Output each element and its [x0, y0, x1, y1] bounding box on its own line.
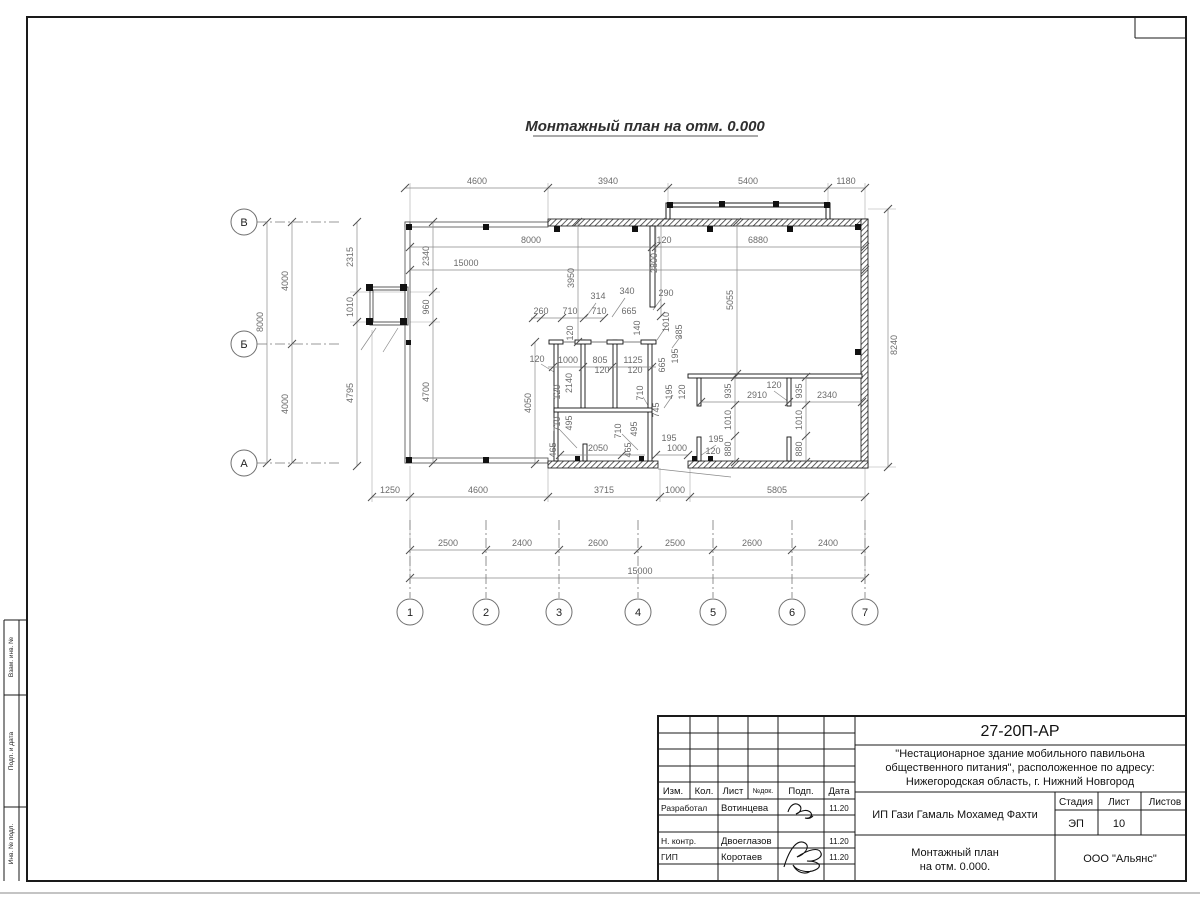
project-line2: общественного питания", расположенное по… — [885, 762, 1154, 774]
sidebar-label-podp: Подп. и дата — [8, 731, 15, 770]
rect-shape — [406, 224, 412, 230]
sidebar-label-inv: Инв. № подл. — [8, 824, 15, 865]
sheet-number: 10 — [1113, 818, 1125, 830]
dim-label: 120 — [705, 446, 720, 456]
row1-name: Двоеглазов — [721, 836, 772, 847]
dim-label: 1000 — [665, 485, 685, 495]
axis-label: 4 — [635, 607, 641, 619]
dim-label: 8000 — [521, 235, 541, 245]
frame-sidebar-labels: Взам. инв. № Подп. и дата Инв. № подл. — [8, 637, 15, 864]
dim-label: 495 — [564, 415, 574, 430]
dim-label: 4600 — [467, 176, 487, 186]
rect-shape — [708, 456, 713, 461]
rect-shape — [719, 201, 725, 207]
dim-label: 1010 — [723, 410, 733, 430]
dim-label: 2315 — [345, 247, 355, 267]
dim-label: 4000 — [280, 394, 290, 414]
rect-shape — [548, 219, 868, 226]
row0-name: Вотинцева — [721, 803, 769, 814]
dim-label: 1010 — [661, 312, 671, 332]
rect-shape — [692, 456, 697, 461]
dim-label: 140 — [632, 320, 642, 335]
dim-label: 665 — [621, 306, 636, 316]
rect-shape — [581, 340, 585, 410]
rect-shape — [400, 284, 407, 291]
signature-votintseva — [788, 804, 813, 819]
dim-label: 290 — [658, 288, 673, 298]
rect-shape — [405, 222, 548, 227]
project-line1: "Нестационарное здание мобильного павиль… — [895, 748, 1145, 760]
axis-label: Б — [240, 339, 247, 351]
dim-label: 2500 — [438, 538, 458, 548]
col-kol: Кол. — [695, 786, 714, 797]
sidebar-label-vzam: Взам. инв. № — [8, 637, 15, 677]
axis-label: 3 — [556, 607, 562, 619]
client-name: ИП Гази Гамаль Мохамед Фахти — [872, 809, 1038, 821]
rect-shape — [632, 226, 638, 232]
rect-shape — [548, 461, 658, 468]
dim-label: 3950 — [566, 268, 576, 288]
dim-label: 710 — [613, 423, 623, 438]
dim-label: 935 — [723, 383, 733, 398]
dim-label: 2500 — [665, 538, 685, 548]
rect-shape — [648, 343, 652, 461]
rect-shape — [641, 340, 656, 344]
rect-shape — [366, 318, 373, 325]
line-shape — [560, 430, 577, 448]
dim-label: 745 — [651, 402, 661, 417]
sheet-label: Лист — [1108, 797, 1130, 808]
dim-label: 880 — [723, 441, 733, 456]
col-list: Лист — [723, 786, 744, 797]
rect-shape — [697, 378, 701, 406]
axis-label: 6 — [789, 607, 795, 619]
dim-label: 1125 — [623, 355, 642, 365]
dim-label: 120 — [552, 384, 562, 399]
path-shape — [666, 203, 830, 221]
rect-shape — [549, 340, 563, 344]
row1-date: 11.20 — [829, 837, 849, 846]
rect-shape — [773, 201, 779, 207]
dim-label: 260 — [533, 306, 548, 316]
dim-label: 120 — [627, 365, 642, 375]
loading-platform-outline — [666, 203, 830, 221]
drawing-sheet: Взам. инв. № Подп. и дата Инв. № подл. М… — [0, 0, 1200, 900]
rect-shape — [688, 461, 868, 468]
dim-label: 880 — [794, 441, 804, 456]
dim-label: 1250 — [380, 485, 400, 495]
rect-shape — [824, 202, 830, 208]
extension-lines — [350, 183, 896, 584]
dim-label: 5805 — [767, 485, 787, 495]
interior-partitions — [549, 226, 862, 461]
rect-shape — [483, 224, 489, 230]
dim-label: 195 — [664, 384, 674, 399]
dim-label: 2910 — [747, 390, 767, 400]
rect-shape — [787, 226, 793, 232]
dim-label: 2600 — [588, 538, 608, 548]
axis-label: В — [240, 217, 247, 229]
dim-label: 465 — [548, 442, 558, 457]
dim-label: 805 — [592, 355, 607, 365]
line-shape — [658, 469, 731, 477]
dim-label: 4700 — [421, 382, 431, 402]
row0-date: 11.20 — [829, 804, 849, 813]
rect-shape — [583, 444, 587, 461]
rect-shape — [405, 458, 548, 463]
dim-label: 120 — [565, 325, 575, 340]
row2-name: Коротаев — [721, 852, 762, 863]
rect-shape — [639, 456, 644, 461]
axis-label: 1 — [407, 607, 413, 619]
rect-shape — [575, 456, 580, 461]
dim-label: 120 — [656, 235, 671, 245]
row0-role: Разработал — [661, 803, 707, 813]
dimension-layer: 4600394054001180800012068801500026071071… — [255, 176, 899, 582]
dim-label: 2340 — [421, 246, 431, 266]
dim-label: 6880 — [748, 235, 768, 245]
row2-role: ГИП — [661, 852, 678, 862]
rect-shape — [855, 224, 861, 230]
dim-label: 314 — [590, 291, 605, 301]
dim-label: 8000 — [255, 312, 265, 332]
rect-shape — [406, 457, 412, 463]
doc-code: 27-20П-АР — [980, 723, 1059, 740]
page-title: Монтажный план на отм. 0.000 — [525, 118, 765, 135]
dim-label: 3940 — [598, 176, 618, 186]
line-shape — [383, 328, 398, 352]
dim-label: 710 — [635, 385, 645, 400]
line-shape — [361, 328, 376, 350]
rect-shape — [373, 290, 405, 322]
rect-shape — [707, 226, 713, 232]
title-block: 27-20П-АР "Нестационарное здание мобильн… — [658, 716, 1186, 881]
dim-label: 1180 — [836, 176, 855, 186]
dim-label: 4600 — [468, 485, 488, 495]
axis-label: А — [240, 458, 248, 470]
dim-label: 2400 — [818, 538, 838, 548]
rect-shape — [483, 457, 489, 463]
signature-gip — [784, 842, 821, 873]
dim-label: 385 — [674, 324, 684, 339]
doc-name-line2: на отм. 0.000. — [920, 861, 990, 873]
dim-label: 2400 — [512, 538, 532, 548]
doc-name-line1: Монтажный план — [911, 847, 999, 859]
dim-label: 3715 — [594, 485, 614, 495]
dim-label: 1000 — [667, 443, 687, 453]
row2-date: 11.20 — [829, 853, 849, 862]
organization-name: ООО "Альянс" — [1083, 853, 1157, 865]
corner-stamp-box — [1135, 17, 1186, 38]
rect-shape — [400, 318, 407, 325]
dim-label: 2800 — [649, 253, 659, 273]
dim-label: 1010 — [345, 297, 355, 317]
dim-label: 195 — [661, 433, 676, 443]
dim-label: 665 — [657, 357, 667, 372]
rect-shape — [406, 340, 411, 345]
dim-label: 2140 — [564, 373, 574, 393]
col-izm: Изм. — [663, 786, 683, 797]
dim-label: 710 — [562, 306, 577, 316]
dim-label: 8240 — [889, 335, 899, 355]
row1-role: Н. контр. — [661, 836, 696, 846]
dim-label: 1010 — [794, 410, 804, 430]
rect-shape — [787, 437, 791, 461]
stage-label: Стадия — [1059, 797, 1093, 808]
dim-label: 120 — [766, 380, 781, 390]
col-data: Дата — [828, 786, 850, 797]
dim-label: 120 — [529, 354, 544, 364]
dim-label: 710 — [591, 306, 606, 316]
rect-shape — [613, 340, 617, 410]
rect-shape — [554, 226, 560, 232]
rect-shape — [667, 202, 673, 208]
dim-label: 120 — [677, 384, 687, 399]
exterior-walls — [548, 219, 868, 468]
dim-label: 465 — [623, 442, 633, 457]
col-ndok: №док. — [753, 788, 774, 795]
axis-label: 7 — [862, 607, 868, 619]
dim-label: 4795 — [345, 383, 355, 403]
stage-value: ЭП — [1068, 818, 1084, 830]
project-line3: Нижегородская область, г. Нижний Новгоро… — [906, 776, 1135, 788]
dim-label: 5400 — [738, 176, 758, 186]
axis-label: 2 — [483, 607, 489, 619]
rect-shape — [688, 374, 862, 378]
rect-shape — [697, 437, 701, 461]
dim-label: 2050 — [588, 443, 608, 453]
dim-label: 195 — [670, 348, 680, 363]
dim-label: 495 — [629, 421, 639, 436]
dim-label: 960 — [421, 299, 431, 314]
dim-label: 1000 — [558, 355, 578, 365]
dim-label: 15000 — [627, 566, 652, 576]
dim-label: 15000 — [453, 258, 478, 268]
dim-label: 195 — [708, 434, 723, 444]
dim-label: 710 — [552, 416, 562, 431]
rect-shape — [607, 340, 623, 344]
sheets-label: Листов — [1149, 797, 1182, 808]
axis-label: 5 — [710, 607, 716, 619]
dim-label: 2340 — [817, 390, 837, 400]
dim-label: 4000 — [280, 271, 290, 291]
dim-label: 5055 — [725, 290, 735, 310]
signatures — [784, 804, 821, 873]
rect-shape — [861, 219, 868, 468]
dim-label: 4050 — [523, 393, 533, 413]
rect-shape — [366, 284, 373, 291]
col-podp: Подп. — [788, 786, 813, 797]
dim-label: 2600 — [742, 538, 762, 548]
dim-label: 935 — [794, 383, 804, 398]
dim-label: 340 — [619, 286, 634, 296]
rect-shape — [554, 408, 652, 412]
rect-shape — [855, 349, 861, 355]
dim-label: 120 — [594, 365, 609, 375]
